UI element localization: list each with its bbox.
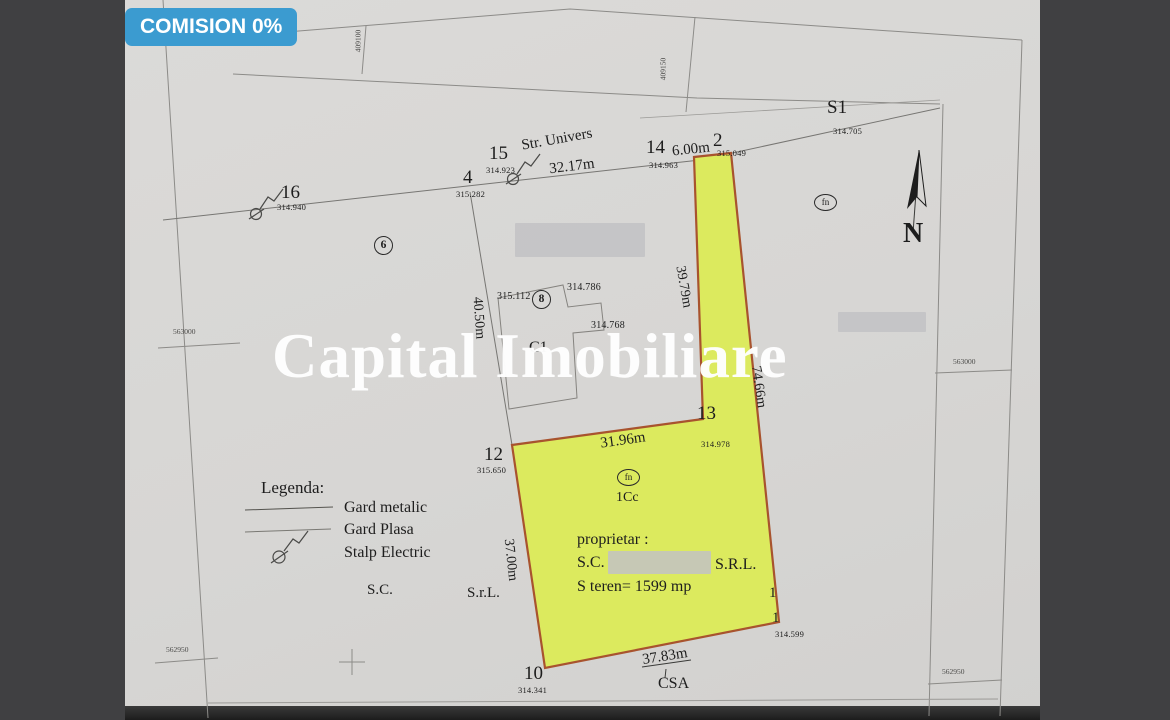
legend-title: Legenda: (261, 479, 324, 496)
boundary-aux (640, 100, 940, 118)
point-14: 14 (646, 138, 665, 157)
grid-label-right-563000: 563000 (953, 358, 976, 366)
redacted-box-top (515, 223, 645, 257)
elev-314786: 314.786 (567, 283, 601, 293)
point-4: 4 (463, 168, 473, 187)
point-13-elev: 314.978 (701, 440, 730, 449)
point-15: 15 (489, 144, 508, 163)
area-label: S teren= 1599 mp (577, 579, 691, 595)
gridline-left-bottom (155, 658, 218, 663)
north-label: N (903, 220, 923, 248)
company-suffix: S.R.L. (715, 557, 756, 573)
point-10-elev: 314.341 (518, 686, 547, 695)
point-1-elev: 314.599 (775, 630, 804, 639)
point-2-elev: 315.049 (717, 149, 746, 158)
grid-label-left-562950: 562950 (166, 646, 189, 654)
owner-label: proprietar : (577, 532, 649, 548)
point-4-elev: 315.282 (456, 190, 485, 199)
grid-label-left-563000: 563000 (173, 328, 196, 336)
gridline-left-top (158, 343, 240, 348)
point-16-elev: 314.940 (277, 203, 306, 212)
scanned-survey-plan: 409100 409150 563000 562950 563000 56295… (0, 0, 1170, 720)
legend-item-stalp-electric: Stalp Electric (344, 545, 431, 561)
point-s1: S1 (827, 98, 847, 117)
point-16: 16 (281, 183, 300, 202)
point-s1-elev: 314.705 (833, 127, 862, 136)
fn-symbol-parcel: fn (617, 469, 640, 486)
street-label-csa: CSA (658, 676, 689, 692)
parcel-number-8-circle: 8 (532, 290, 551, 309)
point-15-elev: 314.923 (486, 166, 515, 175)
point-12-elev: 315.650 (477, 466, 506, 475)
grid-label-409100: 409100 (354, 30, 362, 53)
grid-label-right-562950: 562950 (942, 668, 965, 676)
legend-line-metal (245, 507, 333, 510)
point-14-elev: 314.963 (649, 161, 678, 170)
gridline-top-left (362, 26, 366, 74)
legend-item-gard-plasa: Gard Plasa (344, 522, 414, 538)
pole-icon-legend (271, 531, 308, 563)
point-13: 13 (697, 404, 716, 423)
point-1-upper: 1 (769, 586, 777, 601)
point-10: 10 (524, 664, 543, 683)
redacted-company-name (608, 551, 711, 574)
frame-bottom (208, 699, 998, 703)
gridline-right-top (935, 370, 1012, 373)
grid-label-409150: 409150 (659, 58, 667, 81)
company-prefix: S.C. (577, 555, 605, 571)
redacted-box-right (838, 312, 926, 332)
gridline-right-bottom (928, 680, 1002, 684)
legend-srl: S.r.L. (467, 586, 500, 601)
frame-right (1000, 40, 1022, 716)
point-12: 12 (484, 445, 503, 464)
comision-badge: COMISION 0% (125, 8, 297, 46)
watermark-text: Capital Imobiliare (272, 320, 788, 393)
fn-symbol-right: fn (814, 194, 837, 211)
parcel-number-6-circle: 6 (374, 236, 393, 255)
frame-left (163, 0, 208, 718)
elev-315112: 315.112 (497, 292, 531, 302)
grid-cross-icon (339, 649, 365, 675)
frame-right-inner (929, 104, 943, 716)
legend-item-gard-metalic: Gard metalic (344, 500, 427, 516)
legend-line-plasa (245, 529, 331, 532)
point-1: 1 (772, 611, 780, 626)
legend-sc: S.C. (367, 583, 393, 598)
land-use-label-1cc: 1Cc (616, 491, 639, 505)
